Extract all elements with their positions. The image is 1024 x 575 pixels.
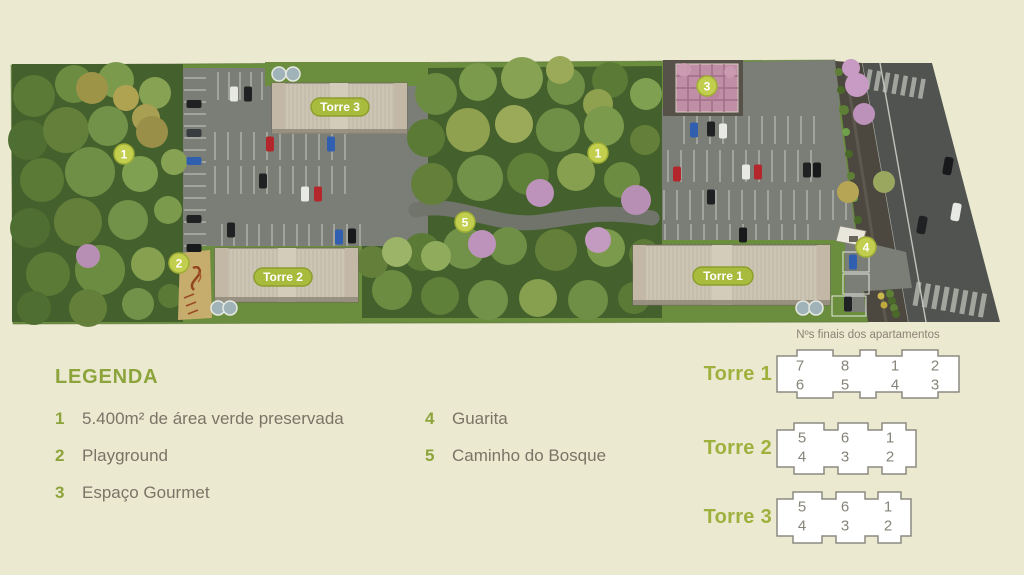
tower-pill-label: Torre 2 xyxy=(263,270,303,284)
tower-2-floorplan: 5 6 1 4 3 2 xyxy=(776,422,917,475)
tower-pill-label: Torre 3 xyxy=(320,100,360,114)
tower-plan-name: Torre 1 xyxy=(690,363,776,386)
apt-number: 3 xyxy=(841,449,849,466)
legend-item-number: 3 xyxy=(55,483,82,503)
svg-text:5: 5 xyxy=(462,216,469,230)
tower-plan-name: Torre 2 xyxy=(690,437,776,460)
legend-item-number: 4 xyxy=(425,409,452,429)
tower-plan-row-torre-1: Torre 1 7 8 1 2 6 5 4 3 xyxy=(690,349,960,399)
tower-pill-label: Torre 1 xyxy=(703,269,743,283)
apt-number: 1 xyxy=(884,499,892,516)
map-marker-5: 5 xyxy=(455,212,475,232)
legend-item-label: Caminho do Bosque xyxy=(452,446,606,466)
apt-number: 3 xyxy=(931,377,939,394)
tower-plan-name: Torre 3 xyxy=(690,506,776,529)
site-plan-illustration: Torre 3 Torre 2 Torre 1 1 2 3 4 5 xyxy=(0,0,1024,345)
legend-item-3: 3 Espaço Gourmet xyxy=(55,483,425,503)
svg-text:4: 4 xyxy=(863,241,870,255)
apt-number: 2 xyxy=(884,518,892,535)
svg-text:3: 3 xyxy=(704,80,711,94)
apt-number: 2 xyxy=(886,449,894,466)
legend: LEGENDA 1 5.400m² de área verde preserva… xyxy=(55,366,606,503)
tower-pill-torre-2: Torre 2 xyxy=(254,268,312,286)
apt-number: 6 xyxy=(796,377,804,394)
legend-item-label: Guarita xyxy=(452,409,508,429)
legend-item-label: 5.400m² de área verde preservada xyxy=(82,409,344,429)
left-forest xyxy=(8,62,187,327)
tower-pill-torre-1: Torre 1 xyxy=(693,267,753,285)
apartment-numbers-title: Nºs finais dos apartamentos xyxy=(776,329,960,341)
apt-number: 1 xyxy=(891,358,899,375)
brochure-page: Torre 3 Torre 2 Torre 1 1 2 3 4 5 xyxy=(0,0,1024,575)
tower-plan-row-torre-2: Torre 2 5 6 1 4 3 2 xyxy=(690,422,917,475)
svg-text:2: 2 xyxy=(176,257,183,271)
legend-item-2: 2 Playground xyxy=(55,446,425,466)
legend-item-number: 2 xyxy=(55,446,82,466)
apt-number: 5 xyxy=(798,499,806,516)
tower-1-floorplan: 7 8 1 2 6 5 4 3 xyxy=(776,349,960,399)
map-marker-3: 3 xyxy=(697,76,717,96)
apt-number: 8 xyxy=(841,358,849,375)
tower-plan-row-torre-3: Torre 3 5 6 1 4 3 2 xyxy=(690,491,912,544)
legend-item-1: 1 5.400m² de área verde preservada xyxy=(55,409,425,429)
apt-number: 2 xyxy=(931,358,939,375)
tower-3-floorplan: 5 6 1 4 3 2 xyxy=(776,491,912,544)
legend-item-label: Espaço Gourmet xyxy=(82,483,210,503)
apt-number: 7 xyxy=(796,358,804,375)
legend-item-number: 5 xyxy=(425,446,452,466)
apt-number: 4 xyxy=(891,377,899,394)
map-marker-2: 2 xyxy=(169,253,189,273)
legend-item-number: 1 xyxy=(55,409,82,429)
apt-number: 5 xyxy=(798,430,806,447)
legend-item-5: 5 Caminho do Bosque xyxy=(425,446,606,466)
map-marker-1-right: 1 xyxy=(588,143,608,163)
apartment-numbers-panel: Nºs finais dos apartamentos Torre 1 7 8 … xyxy=(690,327,1024,567)
tower-pill-torre-3: Torre 3 xyxy=(311,98,369,116)
apt-number: 1 xyxy=(886,430,894,447)
apt-number: 5 xyxy=(841,377,849,394)
apt-number: 4 xyxy=(798,518,806,535)
apt-number: 3 xyxy=(841,518,849,535)
apt-number: 4 xyxy=(798,449,806,466)
apt-number: 6 xyxy=(841,499,849,516)
legend-item-4: 4 Guarita xyxy=(425,409,606,429)
map-marker-4: 4 xyxy=(856,237,876,257)
legend-title: LEGENDA xyxy=(55,366,606,389)
svg-text:1: 1 xyxy=(595,147,602,161)
map-marker-1-left: 1 xyxy=(114,144,134,164)
svg-text:1: 1 xyxy=(121,148,128,162)
apt-number: 6 xyxy=(841,430,849,447)
legend-item-label: Playground xyxy=(82,446,168,466)
